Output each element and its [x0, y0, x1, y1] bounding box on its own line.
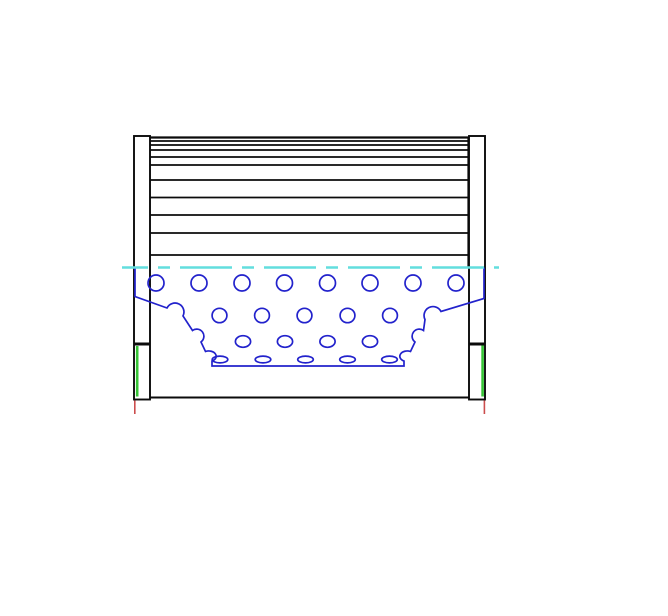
filter-element-drawing: [0, 0, 668, 616]
drawing-canvas: [0, 0, 668, 616]
background: [0, 0, 668, 616]
